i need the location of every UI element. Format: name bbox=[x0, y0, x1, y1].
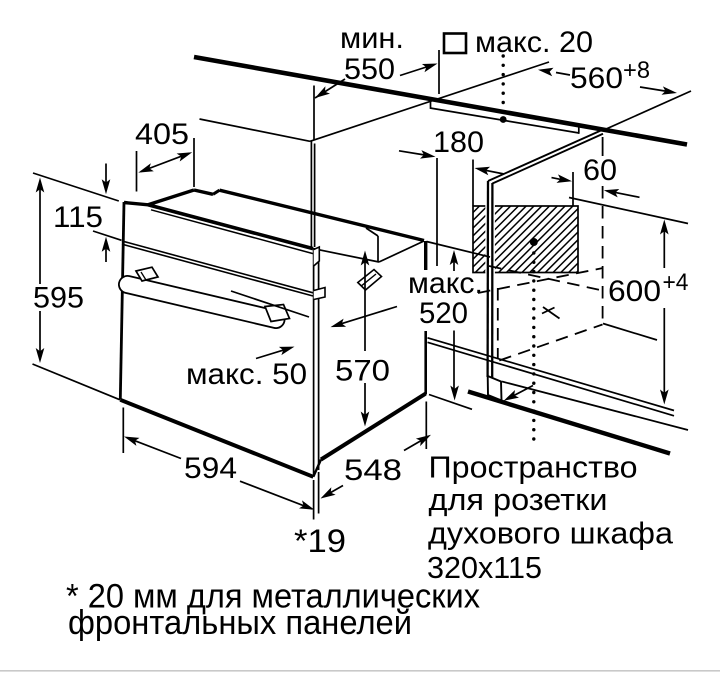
svg-text:115: 115 bbox=[53, 201, 103, 234]
svg-text:+8: +8 bbox=[623, 57, 650, 84]
svg-text:600: 600 bbox=[608, 275, 661, 308]
svg-text:180: 180 bbox=[433, 126, 484, 159]
svg-text:550: 550 bbox=[344, 53, 395, 86]
svg-text:60: 60 bbox=[583, 154, 617, 187]
svg-text:*19: *19 bbox=[294, 523, 346, 559]
svg-text:макс.: макс. bbox=[408, 267, 483, 300]
svg-text:фронтальных панелей: фронтальных панелей bbox=[68, 604, 412, 642]
svg-text:Пространство: Пространство bbox=[429, 451, 638, 485]
svg-text:+4: +4 bbox=[663, 269, 689, 296]
svg-text:405: 405 bbox=[135, 118, 189, 151]
svg-text:макс. 50: макс. 50 bbox=[186, 358, 307, 391]
svg-text:520: 520 bbox=[419, 297, 468, 330]
svg-text:595: 595 bbox=[33, 282, 84, 315]
svg-text:560: 560 bbox=[570, 62, 623, 95]
svg-text:мин.: мин. bbox=[340, 22, 404, 55]
svg-text:макс. 20: макс. 20 bbox=[475, 26, 593, 59]
svg-text:594: 594 bbox=[184, 452, 237, 485]
svg-text:548: 548 bbox=[344, 454, 402, 487]
svg-text:для розетки: для розетки bbox=[429, 483, 608, 517]
svg-text:духового шкафа: духового шкафа bbox=[428, 517, 673, 551]
svg-text:570: 570 bbox=[335, 355, 390, 388]
